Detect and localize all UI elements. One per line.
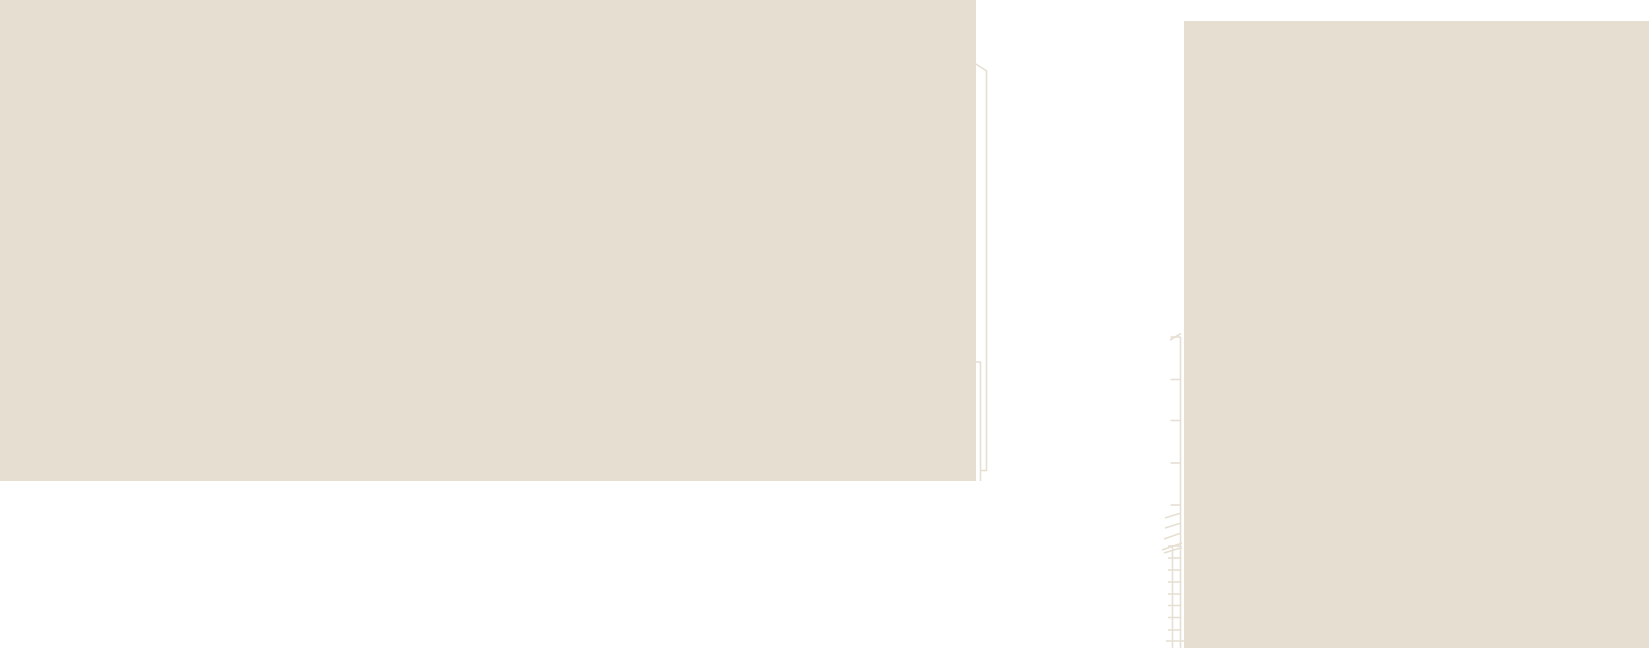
ladder-hatch-stroke xyxy=(1165,513,1181,518)
architectural-elevation-drawing xyxy=(0,0,1649,648)
downspout-pipe xyxy=(975,64,987,482)
left-building-block xyxy=(0,0,976,481)
ladder-hatch-stroke xyxy=(1164,533,1181,539)
right-building-block xyxy=(1184,21,1649,648)
building-blocks xyxy=(0,0,1649,648)
pipe-top-diagonal xyxy=(975,64,986,71)
ladder-hatch-stroke xyxy=(1165,523,1181,528)
wall-ladder xyxy=(1162,334,1184,648)
drawing-canvas xyxy=(0,0,1649,648)
